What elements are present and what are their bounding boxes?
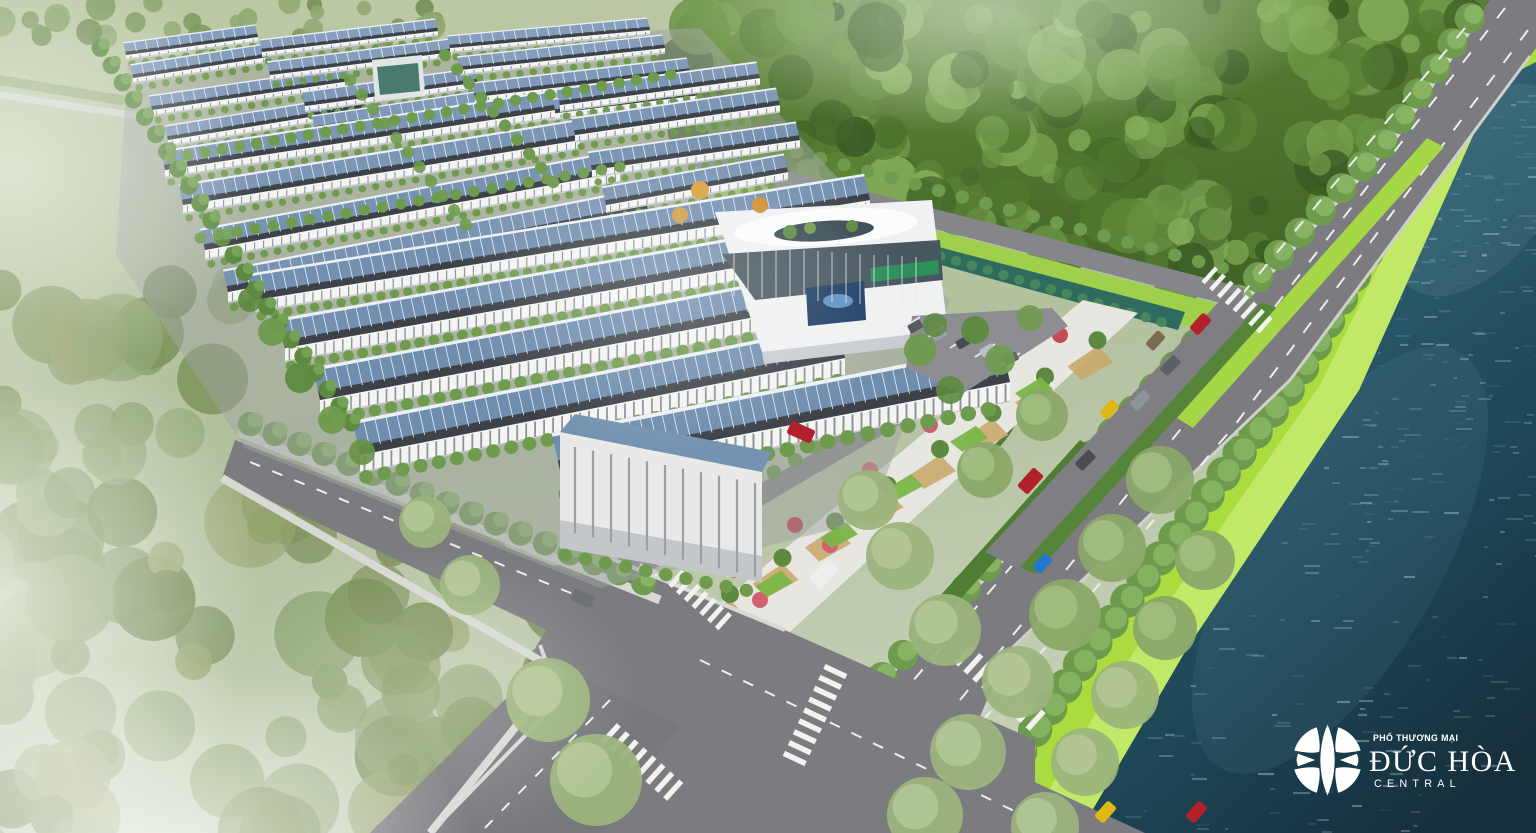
svg-text:PHỐ THƯƠNG MẠI: PHỐ THƯƠNG MẠI [1373,732,1458,743]
svg-text:CENTRAL: CENTRAL [1374,778,1461,790]
svg-text:ĐỨC HÒA: ĐỨC HÒA [1369,745,1517,778]
